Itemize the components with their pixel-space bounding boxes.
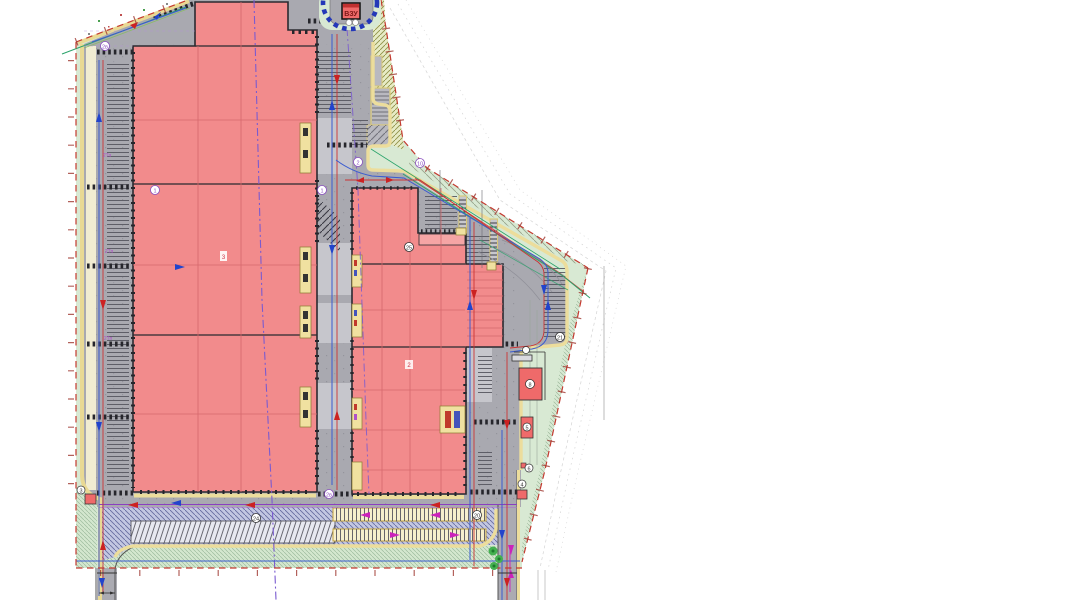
svg-text:2Тп: 2Тп — [103, 153, 112, 159]
svg-text:1: 1 — [320, 189, 323, 195]
svg-text:2Тп: 2Тп — [104, 336, 113, 342]
svg-text:2в: 2в — [102, 45, 108, 51]
svg-text:2Тп: 2Тп — [105, 249, 114, 255]
svg-text:8: 8 — [528, 383, 531, 389]
svg-text:1: 1 — [153, 189, 156, 195]
svg-text:ВЗУ: ВЗУ — [344, 11, 358, 18]
svg-text:25: 25 — [406, 246, 412, 252]
svg-text:3: 3 — [79, 489, 82, 495]
svg-text:21: 21 — [557, 336, 563, 342]
svg-text:10: 10 — [417, 162, 423, 168]
svg-text:5: 5 — [525, 426, 528, 432]
svg-text:24: 24 — [253, 517, 259, 523]
svg-text:6: 6 — [527, 467, 530, 473]
svg-text:20: 20 — [474, 514, 480, 520]
svg-text:4: 4 — [520, 483, 523, 489]
svg-text:2в: 2в — [326, 493, 332, 499]
svg-text:2: 2 — [356, 161, 359, 167]
